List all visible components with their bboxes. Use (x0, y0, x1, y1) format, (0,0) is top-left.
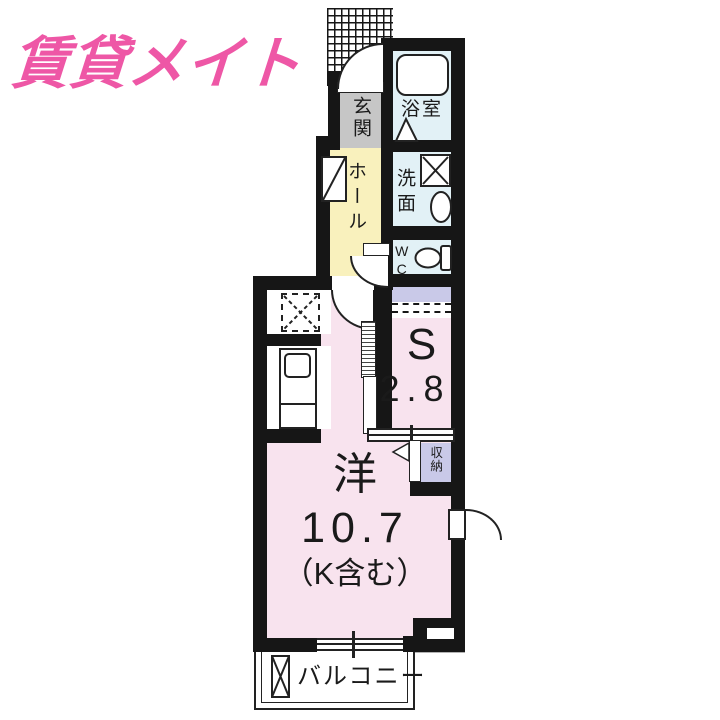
service-room-label: S (392, 322, 451, 368)
main-room-note: （K含む） (255, 558, 455, 591)
hall-label: ホール (345, 161, 365, 236)
balcony-fixture-x (272, 656, 289, 697)
bath-door-triangle-icon (396, 119, 417, 141)
toilet-icon (416, 249, 441, 268)
main-room-label: 洋 (255, 452, 455, 498)
sink-icon (431, 192, 451, 222)
bathroom-label: 浴室 (393, 100, 451, 120)
toilet-tank-icon (441, 246, 451, 270)
refrigerator-x-icon (284, 296, 317, 329)
wc-label: WC (394, 243, 409, 279)
main-room-area: 10.7 (255, 506, 455, 551)
service-room-area: 2.8 (370, 370, 460, 408)
washroom-label: 洗面 (394, 168, 414, 218)
shoe-cabinet-diagonal (323, 158, 345, 200)
washing-machine-x-icon (423, 157, 448, 184)
entrance-label: 玄関 (350, 96, 370, 140)
balcony-label: バルコニー (297, 664, 427, 689)
